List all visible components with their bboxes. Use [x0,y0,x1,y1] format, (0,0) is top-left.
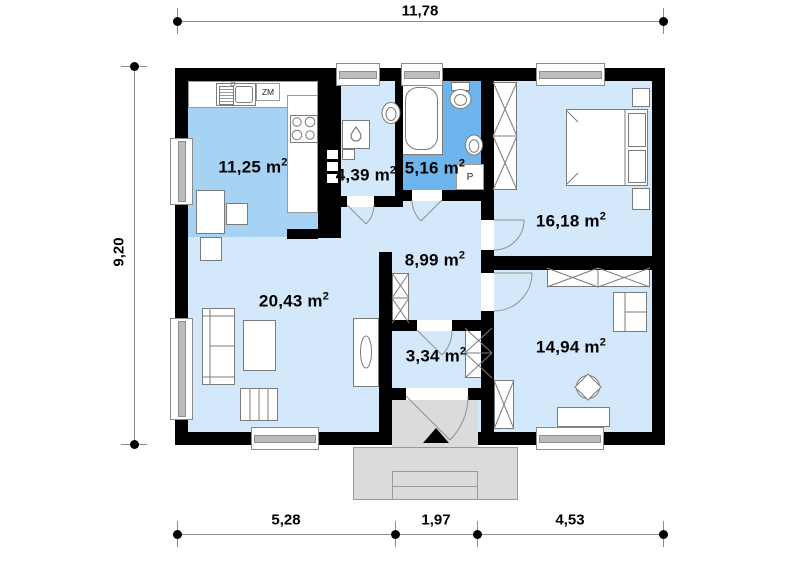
dim-dot [130,440,139,449]
desk [557,407,610,427]
wall-vestibule-bottom-right [468,388,481,400]
wardrobe-hall [392,273,409,323]
window-glass [539,435,601,443]
sideboard [353,318,379,387]
chair-bottom [200,237,222,261]
wall-utility-bottom-right [374,196,403,207]
dishwasher-text: ZM [262,87,274,97]
area-exp: 2 [600,337,606,349]
stove [290,115,318,143]
area-exp: 2 [323,291,329,303]
wall-bedroom-divider [494,256,652,270]
kitchen-counter-right [287,95,318,213]
room-label-utility: 4,39 m2 [336,165,396,186]
dim-dot [659,530,668,539]
armchair [613,292,647,332]
dim-dot [473,530,482,539]
window-glass [178,321,186,417]
area-unit: m [444,158,459,177]
window-glass [404,71,440,79]
area-unit: m [375,165,390,184]
wall-exterior-right [652,68,665,445]
window-top-2 [401,63,443,86]
window-left-2 [170,318,193,420]
doorway-utility [347,196,374,207]
window-left-1 [170,138,193,205]
coffee-table [243,320,276,371]
dimension-line-left [134,66,135,444]
sofa [202,308,235,385]
window-glass [254,435,316,443]
area-exp: 2 [459,250,465,262]
chimney-duct-1 [327,150,338,159]
washing-machine-text: P [467,172,474,183]
area-value: 3,34 [406,346,440,365]
dim-dot [659,17,668,26]
room-label-bedroom-bottom: 14,94 m2 [536,337,606,358]
floor-plan: ZM P [0,0,800,566]
bathtub [401,82,443,155]
wall-hall-bedrooms-mid [481,250,494,273]
doorway-bedroom-bottom [481,273,494,311]
area-exp: 2 [459,158,465,170]
area-unit: m [584,211,599,230]
doorway-vestibule [417,320,452,331]
entrance-arrow [423,428,449,443]
window-top-3 [536,63,605,86]
sink-basin [235,86,253,103]
area-value: 11,25 [218,157,261,176]
window-bottom-2 [536,427,604,450]
area-value: 5,16 [405,158,439,177]
bench [240,388,278,421]
wardrobe-corner [494,380,514,429]
area-exp: 2 [281,157,287,169]
wall-vestibule-bottom-left [392,388,406,400]
boiler [342,120,370,149]
toilet-tank [451,82,470,91]
dishwasher-label: ZM [256,83,280,101]
wardrobe-long [547,268,650,287]
nightstand-1 [632,88,650,107]
doorway-entrance [406,388,468,400]
wall-hall-bedrooms-bottom [481,311,494,445]
area-exp: 2 [460,346,466,358]
doorway-bathroom [412,190,442,201]
kitchen-sink [216,83,256,106]
room-label-bedroom-right: 16,18 m2 [536,211,606,232]
area-value: 8,99 [405,250,439,269]
dimension-bottom-value-3: 4,53 [555,512,584,529]
sink-drainer [219,86,234,105]
dimension-line-top [177,21,663,22]
window-glass [339,71,377,79]
doorway-bedroom-right [481,220,494,250]
pillow-1 [628,113,646,147]
room-label-bathroom: 5,16 m2 [405,158,465,179]
area-unit: m [584,337,599,356]
window-top-1 [336,63,380,86]
dimension-line-bottom [177,534,663,535]
dim-dot [130,62,139,71]
room-label-living: 20,43 m2 [259,291,329,312]
room-label-hall: 8,99 m2 [405,250,465,271]
boiler-step [342,149,355,160]
window-glass [539,71,602,79]
chair-right [226,203,248,225]
window-bottom-1 [251,427,319,450]
window-glass [178,141,186,202]
area-exp: 2 [390,165,396,177]
area-value: 4,39 [336,165,370,184]
dimension-top-value: 11,78 [402,3,439,20]
nightstand-2 [632,188,650,210]
area-unit: m [444,250,459,269]
area-value: 16,18 [536,211,580,230]
wardrobe-bedroom-right [493,82,517,190]
wall-vestibule-top-right [452,320,481,331]
porch-step-line [393,486,477,487]
wall-bathroom-bottom-right [442,190,483,201]
dim-dot [173,530,182,539]
dim-dot [391,530,400,539]
area-exp: 2 [600,211,606,223]
bathtub-inner [405,87,438,150]
area-unit: m [307,291,322,310]
porch-steps [392,471,478,500]
area-unit: m [266,157,281,176]
area-value: 20,43 [259,291,303,310]
area-unit: m [445,346,460,365]
dimension-bottom-value-2: 1,97 [421,512,450,529]
wall-kitchen-stub [287,229,318,239]
room-label-vestibule: 3,34 m2 [406,346,466,367]
dim-dot [173,17,182,26]
area-value: 14,94 [536,337,580,356]
dining-table [196,190,225,234]
room-label-kitchen: 11,25 m2 [218,157,287,178]
wall-vestibule-top-left [392,320,417,331]
wall-hall-bedrooms-top [481,81,494,220]
pillow-2 [628,150,646,183]
dimension-bottom-value-1: 5,28 [271,512,300,529]
chimney [318,81,341,238]
dimension-left-value: 9,20 [111,237,128,266]
wall-living-hall [379,252,392,445]
